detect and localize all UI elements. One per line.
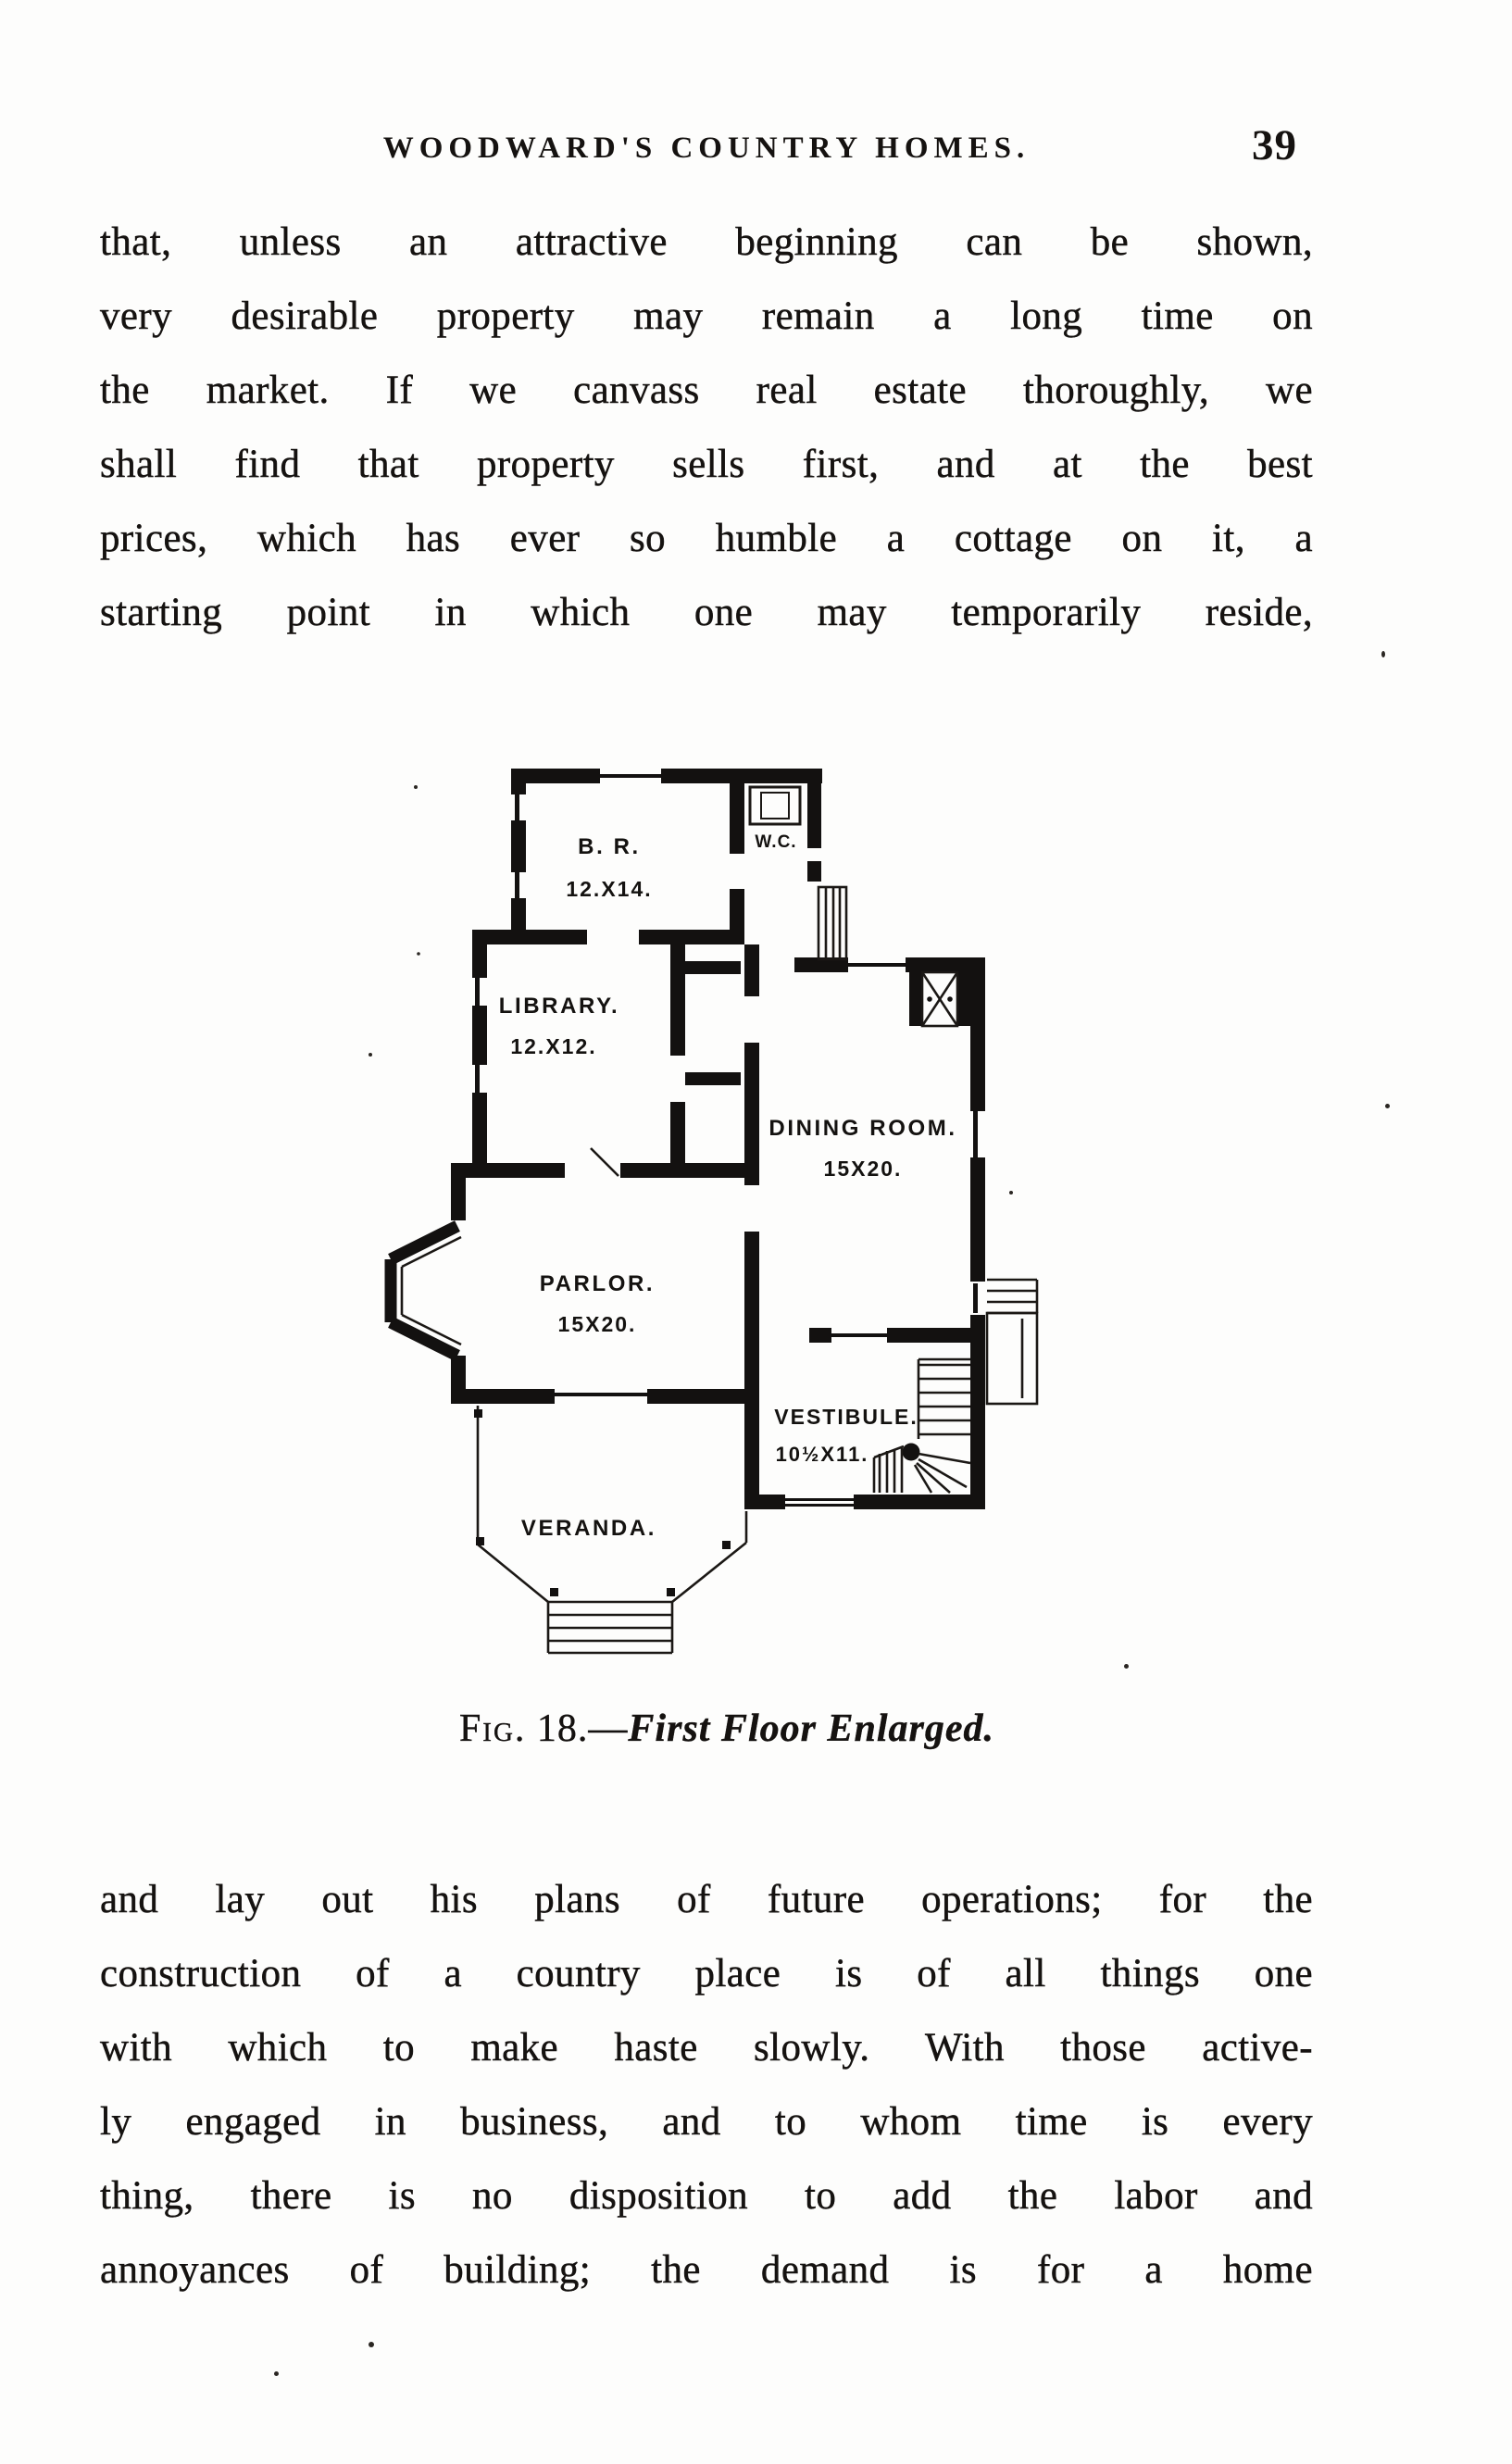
ink-speck: [369, 2342, 374, 2347]
room-label-parlor: PARLOR.: [540, 1271, 655, 1296]
room-dims-library: 12.X12.: [510, 1034, 596, 1058]
figure-caption: Fig. 18.—First Floor Enlarged.: [0, 1707, 1454, 1751]
ink-speck: [1381, 651, 1385, 657]
text-line: construction of a country place is of al…: [100, 1937, 1313, 2011]
bay-window: [391, 1226, 461, 1356]
ink-speck: [1385, 1104, 1390, 1108]
text-line: and lay out his plans of future operatio…: [100, 1863, 1313, 1937]
room-label-dining: DINING ROOM.: [768, 1116, 956, 1141]
ink-speck: [1124, 1664, 1129, 1669]
caption-fig-number: 18.—: [526, 1707, 628, 1750]
ink-speck: [369, 1053, 372, 1057]
toilet-symbol: [750, 787, 800, 824]
room-label-vestibule: VESTIBULE.: [774, 1405, 918, 1429]
door-swing: [591, 1148, 619, 1176]
text-line: that, unless an attractive beginning can…: [100, 206, 1313, 280]
back-stairs: [818, 887, 846, 959]
chimney-symbol: [922, 972, 957, 1026]
text-line: shall find that property sells first, an…: [100, 428, 1313, 502]
text-line: thing, there is no disposition to add th…: [100, 2159, 1313, 2233]
page-number: 39: [1252, 120, 1297, 170]
side-porch: [987, 1280, 1037, 1404]
room-dims-vestibule: 10½X11.: [776, 1443, 869, 1466]
caption-title: First Floor Enlarged.: [628, 1707, 994, 1750]
room-dims-dining: 15X20.: [824, 1157, 903, 1181]
text-line: with which to make haste slowly. With th…: [100, 2011, 1313, 2085]
book-page: WOODWARD'S COUNTRY HOMES. 39 that, unles…: [0, 0, 1512, 2464]
room-label-br: B. R.: [578, 834, 641, 859]
text-line: starting point in which one may temporar…: [100, 576, 1313, 650]
paragraph-top: that, unless an attractive beginning can…: [100, 206, 1313, 650]
floor-plan-drawing: B. R. 12.X14. W.C. LIBRARY. 12.X12. DINI…: [363, 757, 1067, 1670]
room-label-library: LIBRARY.: [499, 994, 620, 1019]
paragraph-bottom: and lay out his plans of future operatio…: [100, 1863, 1313, 2308]
ink-speck: [274, 2371, 279, 2376]
room-dims-parlor: 15X20.: [558, 1312, 637, 1336]
running-head: WOODWARD'S COUNTRY HOMES.: [100, 131, 1313, 166]
text-line: very desirable property may remain a lon…: [100, 280, 1313, 354]
room-label-wc: W.C.: [755, 832, 796, 852]
text-line: prices, which has ever so humble a cotta…: [100, 502, 1313, 576]
text-line: the market. If we canvass real estate th…: [100, 354, 1313, 428]
room-label-veranda: VERANDA.: [521, 1516, 656, 1541]
text-line: annoyances of building; the demand is fo…: [100, 2233, 1313, 2308]
floor-plan-figure: B. R. 12.X14. W.C. LIBRARY. 12.X12. DINI…: [363, 757, 1067, 1670]
room-dims-br: 12.X14.: [566, 877, 652, 901]
text-line: ly engaged in business, and to whom time…: [100, 2085, 1313, 2159]
caption-fig-label: Fig.: [459, 1707, 526, 1750]
